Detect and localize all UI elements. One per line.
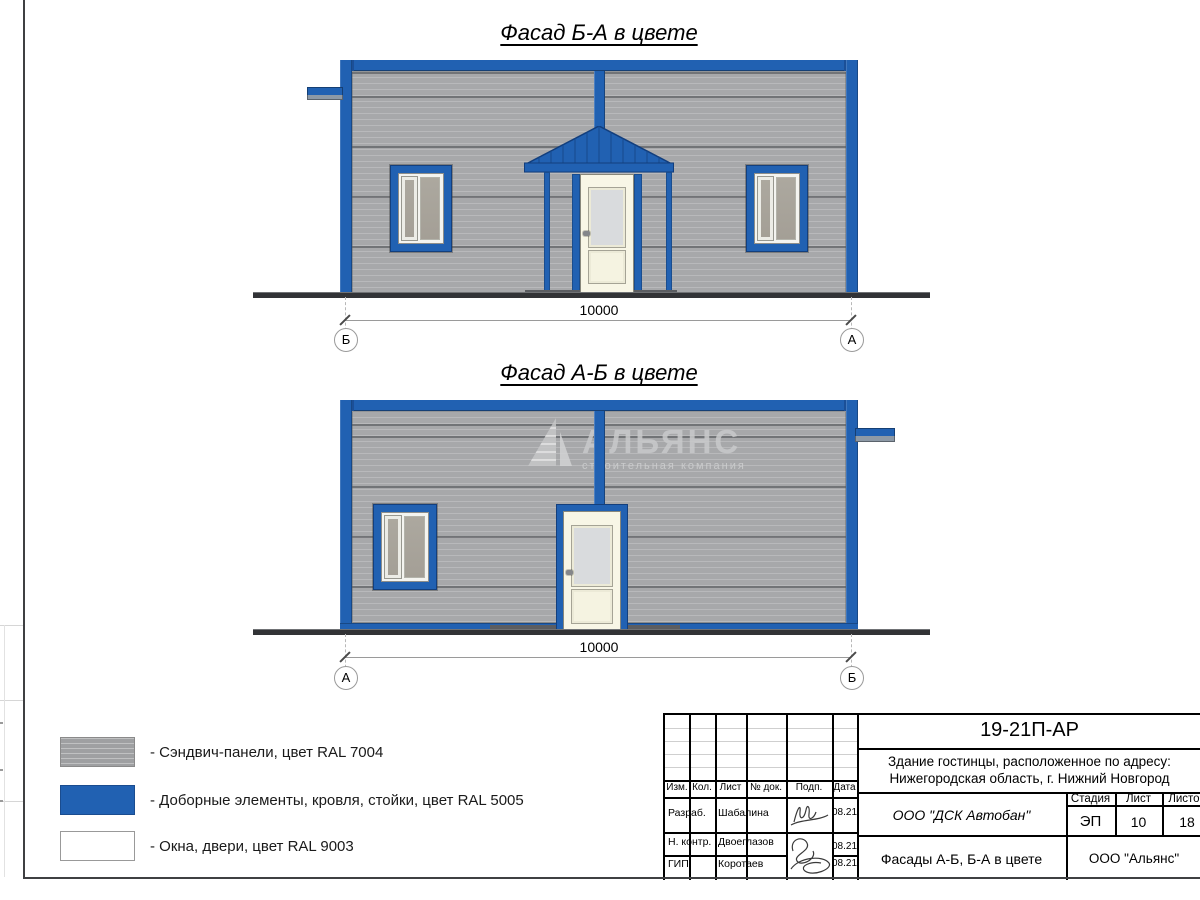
watermark: АЛЬЯНС строительная компания [524, 416, 746, 472]
date-razrab: 08.21 [832, 807, 857, 818]
date-nkontr: 08.21 [832, 841, 857, 852]
name-gip: Коротаев [718, 858, 763, 870]
window-frame [754, 173, 800, 244]
roof-edge-band [340, 400, 858, 411]
legend-label: - Доборные элементы, кровля, стойки, цве… [150, 792, 524, 809]
margin-line [4, 625, 5, 877]
corner-trim-right [846, 60, 858, 295]
door-panel [589, 251, 625, 283]
dimension-value: 10000 [340, 639, 858, 655]
facade-top-title: Фасад Б-А в цвете [340, 20, 858, 46]
signature-razrab [788, 800, 830, 830]
window [746, 165, 808, 252]
sail-logo-icon [524, 416, 574, 472]
axis-marker: Б [840, 666, 864, 690]
window-sash-fixed [776, 177, 796, 240]
ground-line [253, 292, 930, 298]
sheet-title: Фасады А-Б, Б-А в цвете [857, 851, 1066, 867]
window-sash-openable [758, 177, 773, 240]
grid-line [832, 855, 857, 857]
drawing-sheet: Фасад Б-А в цвете [0, 0, 1200, 900]
axis-marker: Б [334, 328, 358, 352]
watermark-text: АЛЬЯНС строительная компания [582, 425, 746, 472]
col-header-list: Лист [715, 782, 746, 793]
entrance-canopy [524, 126, 674, 173]
address-line2: Нижегородская область, г. Нижний Новгоро… [857, 771, 1200, 786]
col-header-izm: Изм. [665, 782, 689, 793]
window-sash-fixed [420, 177, 440, 240]
window-sash-fixed [404, 516, 425, 578]
name-razrab: Шабалина [718, 807, 769, 819]
flue-stack [594, 71, 605, 131]
margin-tick [0, 722, 3, 724]
role-razrab: Разраб. [668, 807, 706, 819]
legend-label: - Сэндвич-панели, цвет RAL 7004 [150, 744, 383, 761]
window-sash-openable [385, 516, 401, 578]
col-header-podp: Подп. [786, 782, 832, 793]
revision-row-line [665, 741, 857, 742]
role-gip: ГИП [668, 858, 689, 870]
entrance-door [580, 174, 634, 293]
door-panel [572, 590, 612, 623]
revision-row-line [665, 767, 857, 768]
name-nkontr: Двоеглазов [718, 836, 774, 848]
company-name: ООО "ДСК Автобан" [857, 807, 1066, 823]
legend-swatch-white [60, 831, 135, 861]
door-trim-left [572, 174, 580, 293]
dimension-line [345, 320, 851, 321]
canopy-post-left [544, 172, 550, 293]
watermark-name: АЛЬЯНС [582, 425, 746, 458]
role-nkontr: Н. контр. [668, 836, 711, 848]
sheet-frame-left [23, 0, 25, 878]
revision-row-line [665, 754, 857, 755]
facade-bottom-drawing: АЛЬЯНС строительная компания [340, 400, 858, 633]
margin-tick [0, 800, 3, 802]
window [373, 504, 437, 590]
col-header-kol: Кол. [689, 782, 715, 793]
door-handle [566, 570, 573, 575]
col-header-ndok: № док. [746, 782, 786, 793]
flue-stack [594, 411, 605, 504]
window-frame [381, 512, 429, 582]
window-frame [398, 173, 444, 244]
window-sash-openable [402, 177, 417, 240]
dimension-line [345, 657, 851, 658]
sheet-label: Лист [1115, 793, 1162, 805]
grid-line [665, 797, 857, 799]
margin-tick [0, 769, 3, 771]
stage-label: Стадия [1066, 793, 1115, 805]
sheets-label: Листов [1162, 793, 1200, 805]
corner-trim-left [340, 400, 352, 633]
canopy-post-right [666, 172, 672, 293]
address-line1: Здание гостинцы, расположенное по адресу… [857, 754, 1200, 769]
grid-line [1066, 805, 1200, 807]
legend-swatch-gray [60, 737, 135, 767]
ground-line [253, 629, 930, 635]
sheets-value: 18 [1162, 814, 1200, 830]
roof-edge-band [340, 60, 858, 71]
vent-pipe-left [307, 87, 343, 100]
facade-top-drawing [340, 60, 858, 295]
grid-line [665, 855, 786, 857]
vent-pipe-right [855, 428, 895, 442]
col-header-data: Дата [832, 782, 857, 793]
doc-code: 19-21П-АР [857, 719, 1200, 742]
date-gip: 08.21 [832, 858, 857, 869]
stage-value: ЭП [1066, 813, 1115, 830]
axis-marker: А [334, 666, 358, 690]
door-glass [572, 526, 612, 586]
sheet-value: 10 [1115, 814, 1162, 830]
sheet-frame-bottom [23, 877, 1200, 879]
facade-bottom-title: Фасад А-Б в цвете [340, 360, 858, 386]
door-glass [589, 188, 625, 247]
entrance-door [563, 511, 621, 633]
legend-label: - Окна, двери, цвет RAL 9003 [150, 838, 354, 855]
grid-line [857, 748, 1200, 750]
door-trim-right [634, 174, 642, 293]
title-block: Изм. Кол. Лист № док. Подп. Дата Разраб.… [663, 713, 1200, 880]
door-frame [556, 504, 628, 633]
door-handle [583, 231, 590, 236]
legend-swatch-blue [60, 785, 135, 815]
window [390, 165, 452, 252]
revision-row-line [665, 728, 857, 729]
axis-marker: А [840, 328, 864, 352]
org-name: ООО "Альянс" [1066, 851, 1200, 866]
dimension-value: 10000 [340, 302, 858, 318]
watermark-subtitle: строительная компания [582, 460, 746, 472]
grid-line [857, 835, 1200, 837]
signature-gip [783, 833, 835, 879]
